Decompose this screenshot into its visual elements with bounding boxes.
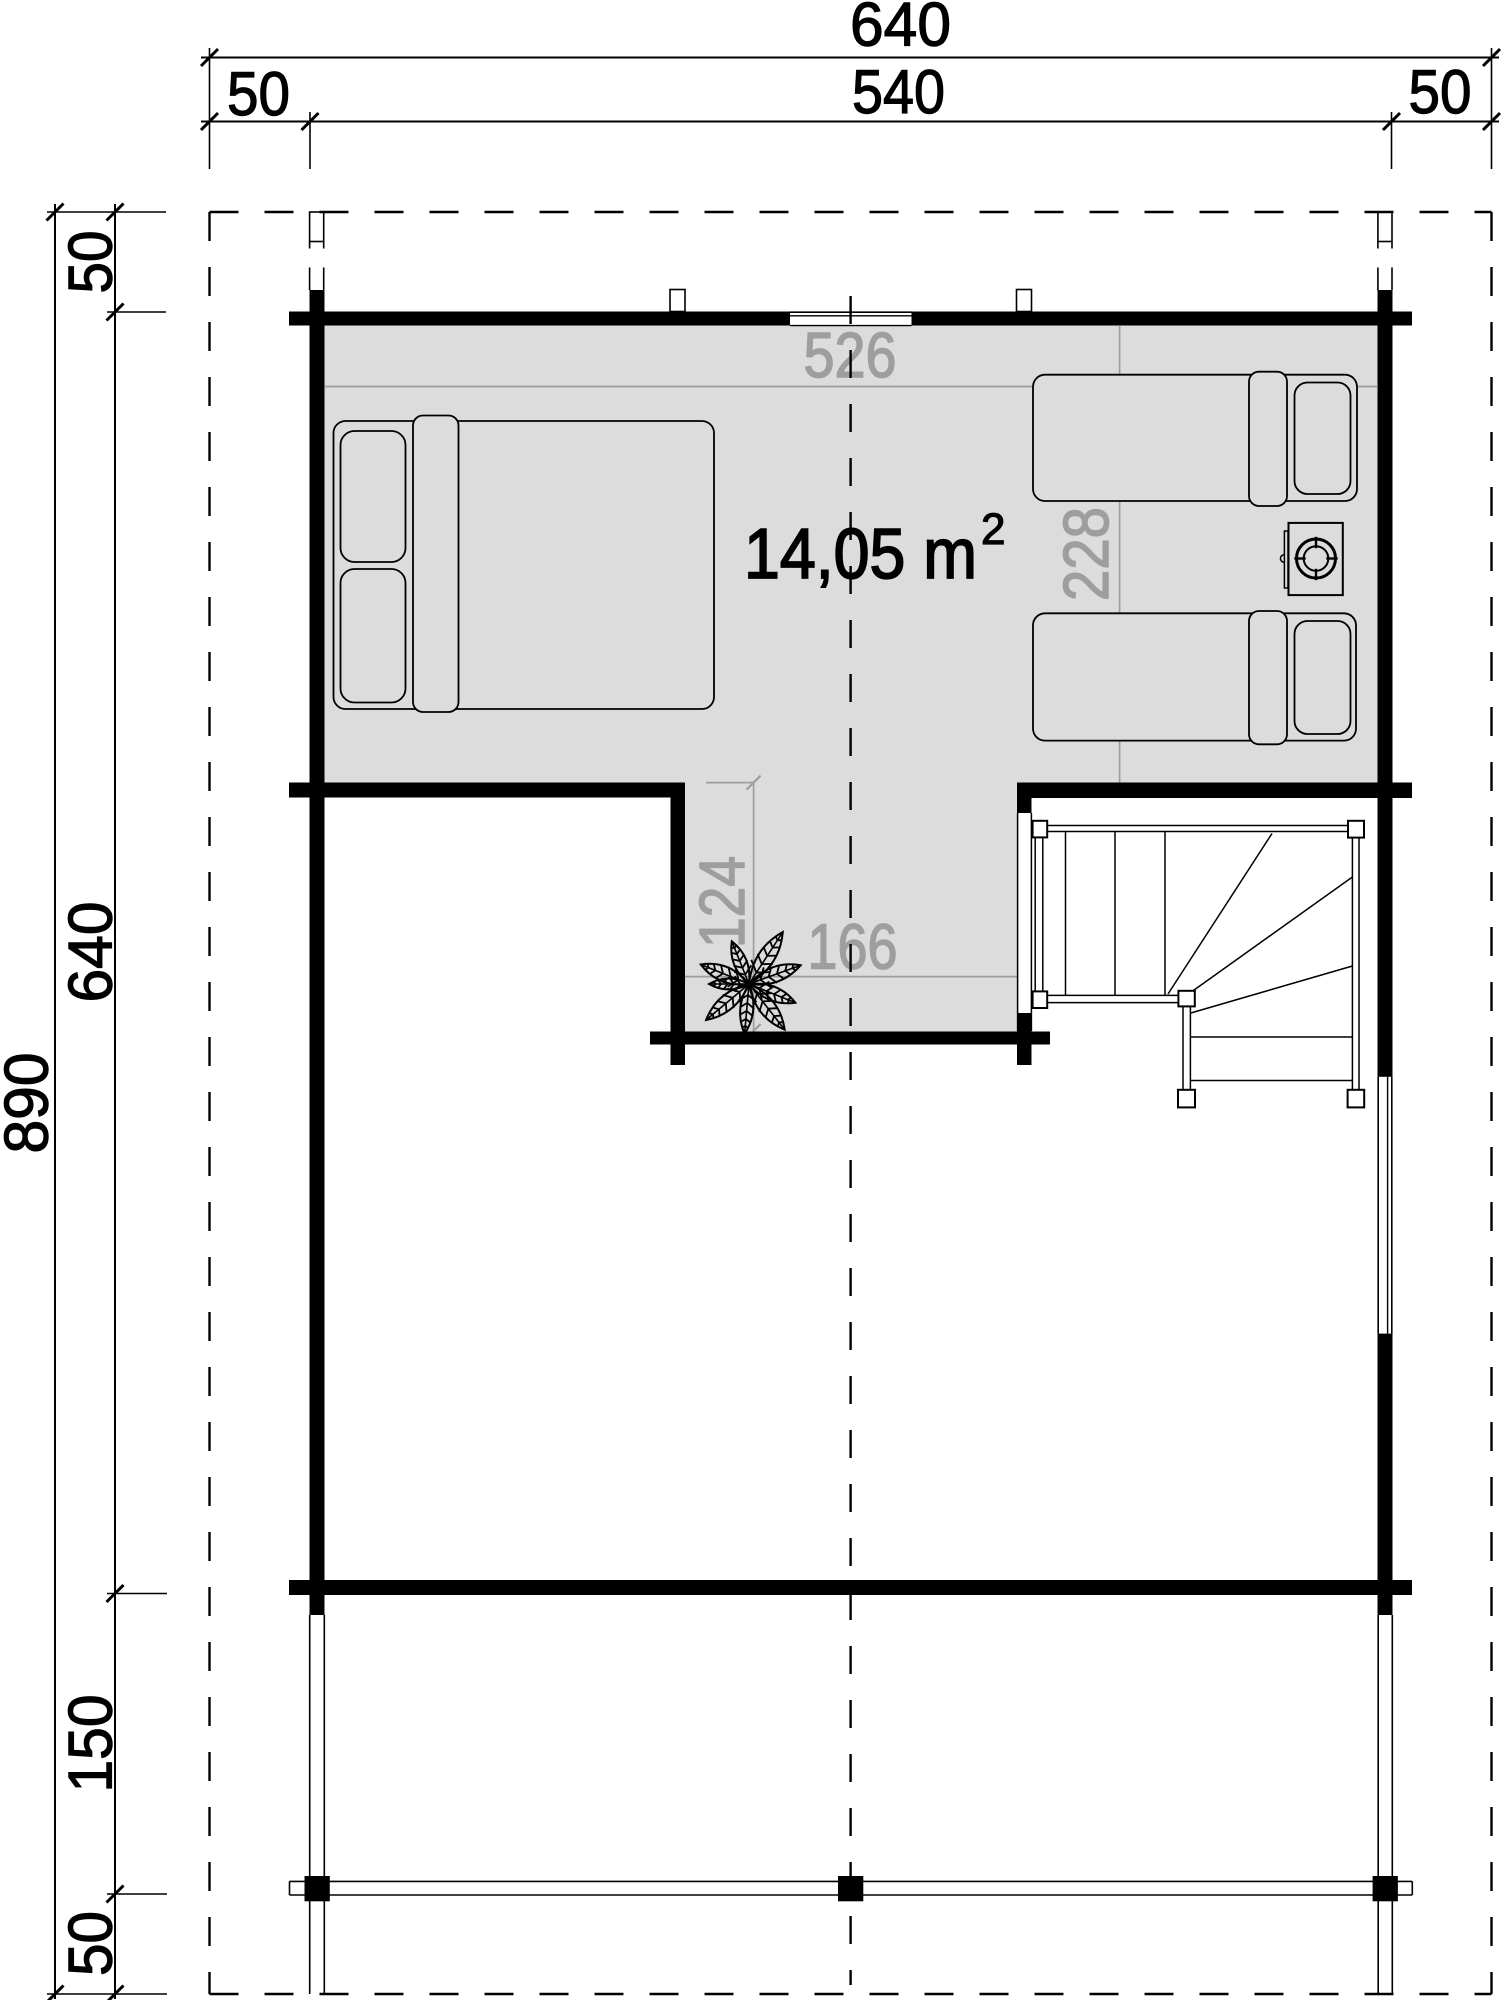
svg-text:640: 640 bbox=[57, 902, 126, 1003]
svg-text:124: 124 bbox=[686, 856, 758, 948]
svg-text:14,05 m: 14,05 m bbox=[744, 515, 977, 594]
svg-text:166: 166 bbox=[808, 911, 898, 983]
svg-text:50: 50 bbox=[227, 60, 290, 129]
svg-text:540: 540 bbox=[852, 58, 945, 127]
svg-text:2: 2 bbox=[981, 505, 1006, 554]
svg-text:50: 50 bbox=[1409, 58, 1472, 127]
svg-text:640: 640 bbox=[850, 0, 951, 60]
svg-text:50: 50 bbox=[57, 231, 126, 294]
svg-text:50: 50 bbox=[57, 1911, 126, 1976]
svg-text:150: 150 bbox=[57, 1695, 126, 1793]
svg-text:228: 228 bbox=[1050, 507, 1122, 601]
svg-text:890: 890 bbox=[0, 1053, 62, 1154]
